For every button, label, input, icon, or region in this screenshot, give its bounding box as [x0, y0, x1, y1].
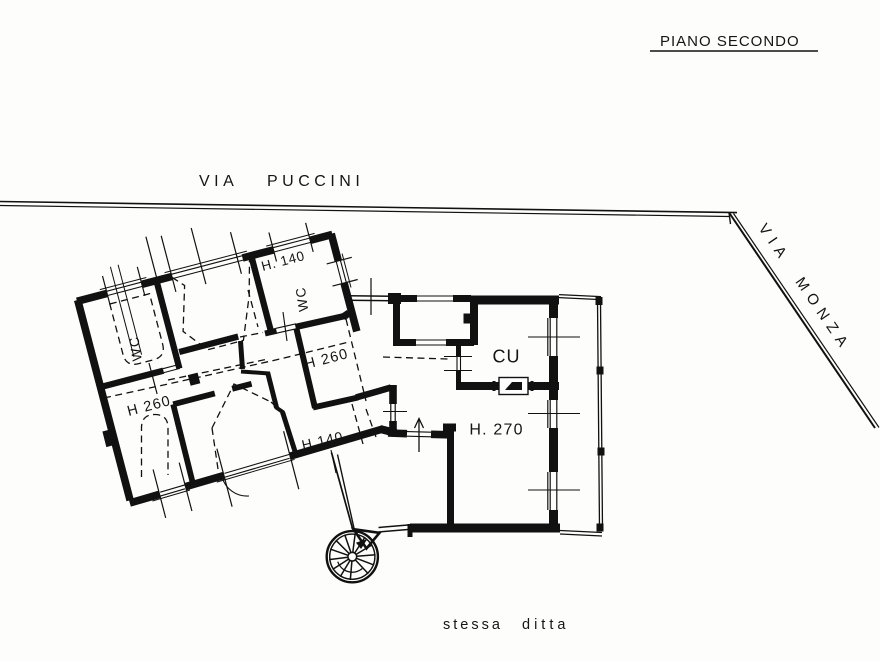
- svg-text:VIA: VIA: [199, 173, 238, 190]
- svg-text:H. 270: H. 270: [469, 422, 523, 439]
- svg-text:PIANO SECONDO: PIANO SECONDO: [660, 33, 800, 50]
- svg-text:PUCCINI: PUCCINI: [267, 173, 364, 190]
- svg-text:ditta: ditta: [522, 617, 569, 633]
- svg-text:stessa: stessa: [443, 617, 503, 633]
- svg-text:CU: CU: [493, 347, 521, 367]
